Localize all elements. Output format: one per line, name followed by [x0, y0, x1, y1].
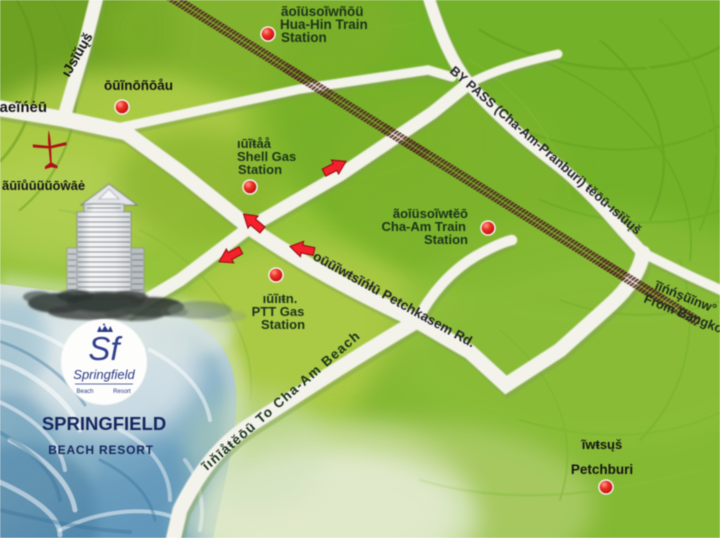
svg-text:Station: Station — [238, 162, 282, 177]
svg-text:Station: Station — [281, 30, 327, 45]
svg-text:Springfield: Springfield — [73, 367, 135, 382]
svg-text:Sf: Sf — [88, 330, 123, 367]
svg-text:SPRINGFIELD: SPRINGFIELD — [42, 413, 166, 434]
svg-text:ĩūīaeĩńėū: ĩūīaeĩńėū — [0, 99, 47, 116]
svg-text:BEACH RESORT: BEACH RESORT — [48, 443, 154, 457]
svg-text:Resort: Resort — [113, 389, 131, 395]
svg-text:ĩwŧsųš: ĩwŧsųš — [581, 437, 622, 452]
svg-text:ōūĩnōñōåu: ōūĩnōñōåu — [104, 78, 173, 93]
svg-text:Station: Station — [424, 232, 468, 247]
svg-text:Petchburi: Petchburi — [571, 462, 633, 477]
svg-text:Station: Station — [261, 317, 305, 332]
svg-text:Beach: Beach — [76, 389, 93, 395]
svg-text:ãūīůūũŭōŵāė: ãūīůūũŭōŵāė — [2, 178, 85, 193]
